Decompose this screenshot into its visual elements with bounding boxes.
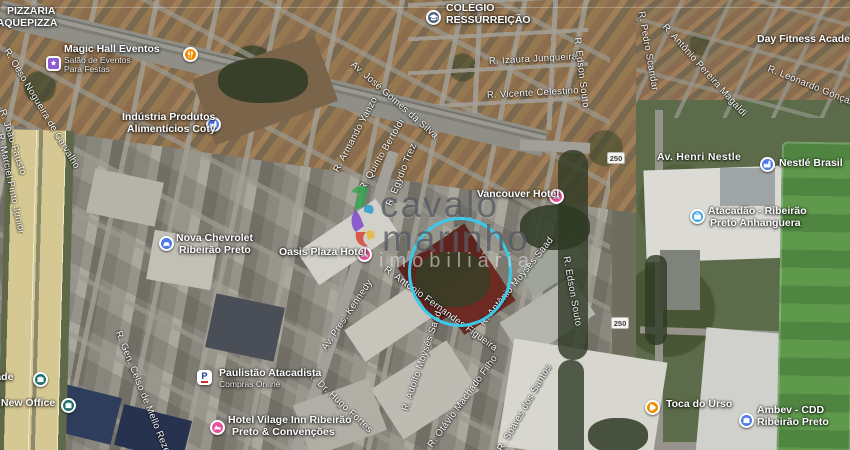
paulistao-logo-icon: P [201,372,207,383]
poi-label-line: Atacadão - Ribeirão [708,206,807,218]
poi-marker-atacadao-ribeirao-preto-anhanguera[interactable] [690,209,705,224]
poi-label-oasis-plaza-hotel[interactable]: Oasis Plaza Hotel [279,247,367,259]
poi-marker-toca-do-urso[interactable] [645,400,660,415]
poi-label-line: Para Festas [64,65,160,75]
poi-label-line: Alimentícios Coty [127,124,216,136]
poi-label-line: Ambev - CDD [757,405,829,417]
poi-label-hotel-vilage-inn-ribeirao-preto-convencoes[interactable]: Hotel Vilage Inn RibeirãoPreto & Convenç… [228,415,352,439]
satellite-map[interactable]: 250250 R. Oeso Nogueira de CarvalhoR. Jo… [0,0,850,450]
poi-label-colegio-ressurreicao[interactable]: COLÉGIORESSURREIÇÃO [446,3,531,27]
poi-label-line: Ribeirão Preto [179,245,253,257]
poi-label-line: Nova Chevrolet [176,233,253,245]
shopping-icon [693,212,702,221]
poi-label-line: RESSURREIÇÃO [446,15,531,27]
poi-label-day-fitness-academia[interactable]: Day Fitness Academia [757,34,850,46]
poi-marker-contabilidade[interactable] [33,372,48,387]
poi-marker-restaurant-marker[interactable] [183,47,198,62]
poi-marker-hotel-vilage-inn-ribeirao-preto-convencoes[interactable] [210,420,225,435]
office-icon [36,375,45,384]
poi-label-line: Nestlé Brasil [779,158,843,170]
poi-label-line: Oasis Plaza Hotel [279,247,367,259]
poi-label-atacadao-ribeirao-preto-anhanguera[interactable]: Atacadão - RibeirãoPreto Anhanguera [708,206,807,230]
poi-label-nestle-brasil[interactable]: Nestlé Brasil [779,158,843,170]
poi-label-line: COLÉGIO [446,3,531,15]
poi-label-line: Magic Hall Eventos [64,44,160,56]
poi-label-line: Ribeirão Preto [757,417,829,429]
poi-layer: PIZZARIAMAQUEPIZZAMagic Hall EventosSalã… [0,0,850,450]
car-icon [162,239,171,248]
star-icon [49,59,58,68]
poi-label-ribeirao-new-office[interactable]: Ribeirão New Office [0,398,55,410]
poi-marker-ambev-cdd-ribeirao-preto[interactable] [739,413,754,428]
poi-marker-nestle-brasil[interactable] [760,157,775,172]
poi-label-line: Indústria Produtos [122,112,216,124]
office-icon [64,401,73,410]
poi-label-line: Vancouver Hotel [477,189,559,201]
hotel-icon [213,423,222,432]
poi-label-vancouver-hotel[interactable]: Vancouver Hotel [477,189,559,201]
poi-label-magic-hall-eventos[interactable]: Magic Hall EventosSalão de EventosPara F… [64,44,160,75]
restaurant-icon [186,50,195,59]
poi-marker-magic-hall-eventos[interactable] [46,56,61,71]
poi-label-toca-do-urso[interactable]: Toca do Urso [666,399,732,411]
poi-label-ambev-cdd-ribeirao-preto[interactable]: Ambev - CDDRibeirão Preto [757,405,829,429]
poi-label-nova-chevrolet-ribeirao-preto[interactable]: Nova ChevroletRibeirão Preto [176,233,253,257]
poi-marker-colegio-ressurreicao[interactable] [426,10,441,25]
poi-label-line: MAQUEPIZZA [0,18,57,30]
beer-icon [648,403,657,412]
factory-icon [763,160,772,169]
poi-label-line: Paulistão Atacadista [219,368,321,380]
property-highlight-circle [408,217,512,327]
poi-label-line: Ribeirão New Office [0,398,55,410]
poi-label-line: Contabilidade [0,372,13,384]
office-icon [742,416,751,425]
poi-label-contabilidade[interactable]: Contabilidade [0,372,13,384]
school-icon [429,13,438,22]
poi-marker-paulistao-atacadista[interactable]: P [197,370,212,385]
poi-label-line: Hotel Vilage Inn Ribeirão [228,415,352,427]
poi-label-line: Toca do Urso [666,399,732,411]
poi-label-line: PIZZARIA [7,6,57,18]
poi-label-line: Day Fitness Academia [757,34,850,46]
poi-label-industria-produtos-alimenticios-coty[interactable]: Indústria ProdutosAlimentícios Coty [122,112,216,136]
poi-label-line: Preto Anhanguera [710,218,807,230]
poi-label-line: Compras Online [219,380,321,390]
poi-label-pizzaria-maquepizza[interactable]: PIZZARIAMAQUEPIZZA [0,6,57,30]
poi-label-paulistao-atacadista[interactable]: Paulistão AtacadistaCompras Online [219,368,321,389]
poi-marker-nova-chevrolet-ribeirao-preto[interactable] [159,236,174,251]
poi-marker-ribeirao-new-office[interactable] [61,398,76,413]
poi-label-line: Preto & Convenções [232,427,352,439]
